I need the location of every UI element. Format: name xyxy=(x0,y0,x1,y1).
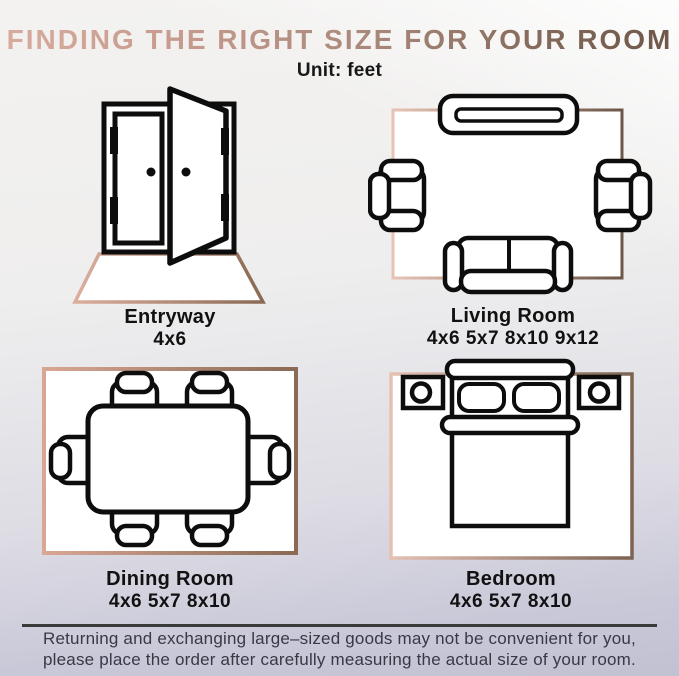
living-room-label: Living Room 4x6 5x7 8x10 9x12 xyxy=(368,305,658,350)
door-closed-leaf xyxy=(110,114,162,243)
room-sizes: 4x6 5x7 8x10 9x12 xyxy=(368,328,658,350)
entryway-label: Entryway 4x6 xyxy=(68,306,272,351)
room-name: Living Room xyxy=(368,305,658,328)
dining-table xyxy=(88,406,248,512)
bed xyxy=(442,361,578,526)
room-name: Bedroom xyxy=(383,568,639,591)
entryway-door-icon xyxy=(68,86,272,308)
dining-room-layout-icon xyxy=(36,360,304,560)
armchair-left xyxy=(370,161,424,230)
unit-label: Unit: feet xyxy=(0,60,679,82)
armchair-right xyxy=(596,161,650,230)
door-open-leaf xyxy=(170,89,229,263)
footer-notice-line2: please place the order after carefully m… xyxy=(0,650,679,671)
bedroom-layout-icon xyxy=(383,356,639,566)
room-name: Entryway xyxy=(68,306,272,329)
sofa xyxy=(445,238,571,292)
footer-notice-line1: Returning and exchanging large–sized goo… xyxy=(0,629,679,650)
nightstand-right xyxy=(579,377,619,408)
room-sizes: 4x6 xyxy=(68,329,272,351)
dining-room-label: Dining Room 4x6 5x7 8x10 xyxy=(36,568,304,613)
living-room-layout-icon xyxy=(368,88,658,295)
room-name: Dining Room xyxy=(36,568,304,591)
footer-divider xyxy=(22,624,657,627)
nightstand-left xyxy=(403,377,443,408)
page-title: FINDING THE RIGHT SIZE FOR YOUR ROOM xyxy=(0,24,679,56)
bedroom-label: Bedroom 4x6 5x7 8x10 xyxy=(383,568,639,613)
room-sizes: 4x6 5x7 8x10 xyxy=(383,591,639,613)
room-sizes: 4x6 5x7 8x10 xyxy=(36,591,304,613)
footer-notice: Returning and exchanging large–sized goo… xyxy=(0,629,679,670)
infographic-canvas: FINDING THE RIGHT SIZE FOR YOUR ROOM Uni… xyxy=(0,0,679,676)
tv-console xyxy=(440,96,577,133)
